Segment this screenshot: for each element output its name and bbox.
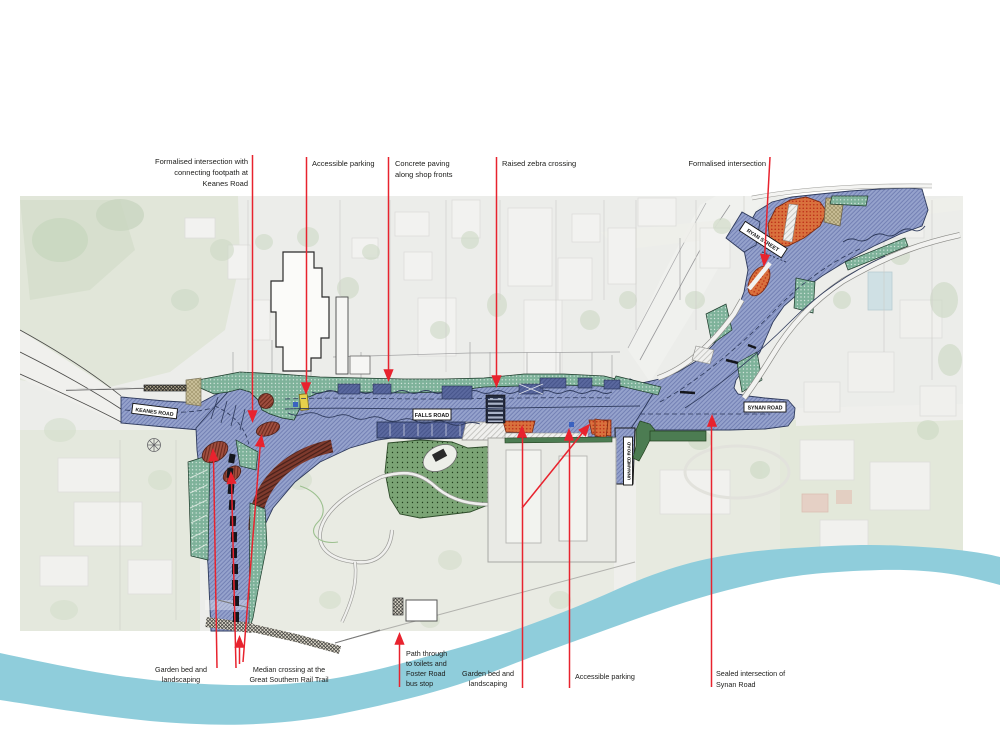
- svg-text:along shop fronts: along shop fronts: [395, 170, 453, 179]
- svg-text:landscaping: landscaping: [162, 675, 200, 684]
- svg-text:Path through: Path through: [406, 649, 447, 658]
- svg-text:Formalised intersection with: Formalised intersection with: [155, 157, 248, 166]
- svg-text:Synan Road: Synan Road: [716, 680, 756, 689]
- svg-text:Raised zebra crossing: Raised zebra crossing: [502, 159, 576, 168]
- svg-text:connecting footpath at: connecting footpath at: [174, 168, 249, 177]
- svg-text:Accessible parking: Accessible parking: [312, 159, 375, 168]
- svg-text:Garden bed and: Garden bed and: [155, 665, 207, 674]
- svg-text:UNNAMED ROAD: UNNAMED ROAD: [626, 441, 631, 480]
- svg-text:Great Southern Rail Trail: Great Southern Rail Trail: [249, 675, 329, 684]
- svg-text:Formalised intersection: Formalised intersection: [688, 159, 766, 168]
- svg-text:Garden bed and: Garden bed and: [462, 669, 514, 678]
- svg-text:FALLS ROAD: FALLS ROAD: [415, 413, 450, 419]
- svg-text:Accessible parking: Accessible parking: [575, 672, 635, 681]
- svg-text:to toilets and: to toilets and: [406, 659, 447, 668]
- svg-text:bus stop: bus stop: [406, 679, 433, 688]
- svg-text:Keanes Road: Keanes Road: [203, 179, 248, 188]
- svg-text:Median crossing at the: Median crossing at the: [253, 665, 325, 674]
- svg-text:SYNAN ROAD: SYNAN ROAD: [748, 406, 783, 412]
- svg-text:Concrete paving: Concrete paving: [395, 159, 450, 168]
- svg-text:Foster Road: Foster Road: [406, 669, 446, 678]
- svg-text:landscaping: landscaping: [469, 679, 507, 688]
- svg-text:Sealed intersection of: Sealed intersection of: [716, 669, 785, 678]
